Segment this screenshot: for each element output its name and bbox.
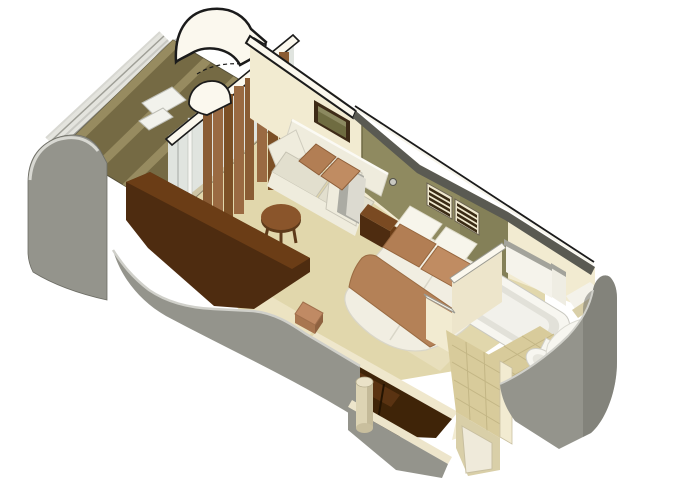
table-top [261,204,301,230]
column-shade [367,382,373,428]
bath-outer-gray-dark [583,275,617,437]
curtain-strip [224,94,233,230]
floorplan-rendering [0,0,680,486]
stateroom-floorplan [0,0,680,486]
hull-slab-left [28,135,107,300]
column-base [356,423,373,433]
curtain-strip [234,86,244,214]
column-top [356,377,373,387]
reading-light-knob [390,179,397,186]
column [356,377,373,433]
